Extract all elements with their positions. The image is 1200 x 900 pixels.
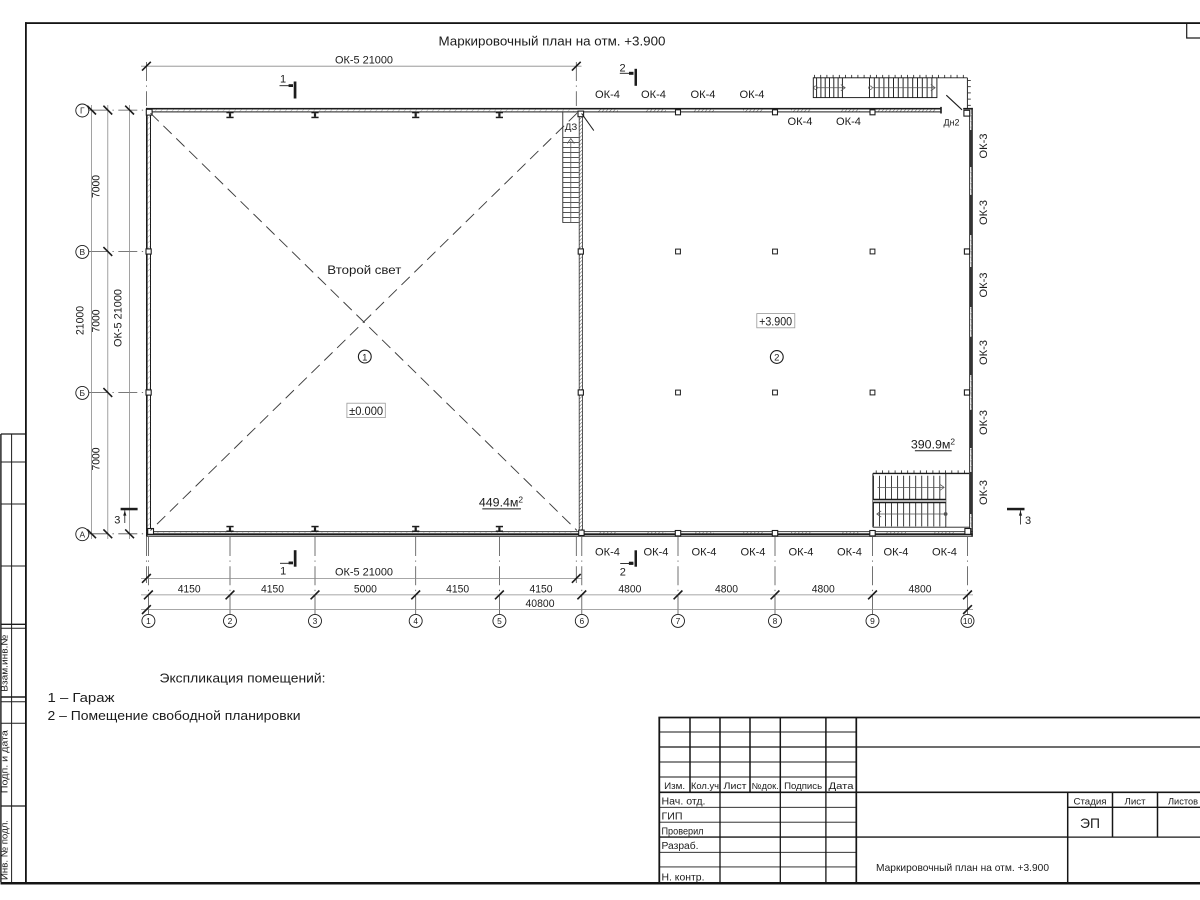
svg-text:4800: 4800: [618, 583, 641, 595]
svg-text:Подп. и дата: Подп. и дата: [0, 729, 11, 793]
svg-text:1: 1: [280, 565, 286, 577]
svg-text:ЭП: ЭП: [1080, 816, 1100, 831]
svg-text:5: 5: [497, 616, 502, 626]
svg-text:7000: 7000: [91, 175, 103, 198]
svg-text:Лист: Лист: [724, 781, 747, 791]
svg-text:21000: 21000: [75, 306, 87, 335]
svg-text:4150: 4150: [261, 583, 284, 595]
svg-text:4150: 4150: [530, 583, 553, 595]
svg-text:ОК-3: ОК-3: [978, 340, 990, 365]
svg-text:ОК-4: ОК-4: [788, 116, 813, 128]
svg-text:ОК-4: ОК-4: [644, 547, 669, 559]
svg-text:1: 1: [362, 352, 367, 363]
svg-text:1: 1: [280, 74, 286, 86]
svg-text:Нач. отд.: Нач. отд.: [662, 797, 706, 808]
svg-text:3: 3: [1025, 515, 1031, 527]
svg-text:ОК-3: ОК-3: [978, 272, 990, 297]
svg-text:ОК-4: ОК-4: [741, 547, 766, 559]
svg-text:2: 2: [619, 62, 625, 74]
svg-text:Лист: Лист: [1125, 797, 1146, 807]
svg-text:ОК-5 21000: ОК-5 21000: [113, 289, 125, 347]
svg-text:Подпись: Подпись: [784, 781, 822, 791]
svg-text:ОК-4: ОК-4: [641, 89, 666, 101]
svg-text:ОК-3: ОК-3: [978, 410, 990, 435]
svg-text:ОК-4: ОК-4: [595, 89, 620, 101]
svg-text:Дата: Дата: [829, 781, 854, 791]
svg-text:ДЗ: ДЗ: [565, 122, 578, 132]
svg-text:Г: Г: [80, 106, 85, 116]
svg-text:8: 8: [773, 616, 778, 626]
svg-text:ОК-5 21000: ОК-5 21000: [335, 567, 393, 579]
svg-text:4150: 4150: [178, 583, 201, 595]
svg-text:Взам.инв.№: Взам.инв.№: [0, 635, 11, 692]
svg-text:ОК-3: ОК-3: [978, 480, 990, 505]
svg-text:ОК-4: ОК-4: [691, 89, 716, 101]
svg-text:7000: 7000: [91, 310, 103, 333]
svg-text:Дн2: Дн2: [944, 117, 960, 127]
svg-text:2: 2: [774, 353, 779, 364]
svg-text:ОК-3: ОК-3: [978, 133, 990, 158]
svg-text:ОК-3: ОК-3: [978, 200, 990, 225]
svg-text:ОК-4: ОК-4: [884, 547, 909, 559]
svg-text:1 – Гараж: 1 – Гараж: [48, 691, 116, 705]
svg-text:40800: 40800: [526, 598, 555, 610]
svg-text:7000: 7000: [91, 448, 103, 471]
svg-text:1: 1: [146, 616, 151, 626]
svg-text:2 – Помещение свободной планир: 2 – Помещение свободной планировки: [48, 709, 301, 723]
svg-text:ОК-4: ОК-4: [595, 547, 620, 559]
svg-text:2: 2: [620, 566, 626, 578]
svg-text:+3.900: +3.900: [759, 316, 792, 329]
svg-text:Н. контр.: Н. контр.: [662, 872, 705, 883]
svg-text:2: 2: [228, 616, 233, 626]
svg-text:ОК-4: ОК-4: [932, 547, 957, 559]
svg-text:В: В: [80, 247, 86, 257]
svg-text:Экспликация помещений:: Экспликация помещений:: [160, 672, 326, 686]
svg-text:Второй свет: Второй свет: [327, 263, 402, 277]
svg-text:9: 9: [870, 616, 875, 626]
svg-text:6: 6: [579, 616, 584, 626]
svg-text:Кол.уч: Кол.уч: [691, 781, 719, 791]
svg-text:±0.000: ±0.000: [349, 405, 383, 418]
svg-text:Маркировочный план на отм. +3.: Маркировочный план на отм. +3.900: [439, 33, 666, 48]
svg-text:ОК-5 21000: ОК-5 21000: [335, 54, 393, 66]
svg-text:ОК-4: ОК-4: [740, 89, 765, 101]
svg-text:4: 4: [413, 616, 418, 626]
svg-text:449.4м2: 449.4м2: [479, 494, 524, 509]
svg-text:4800: 4800: [715, 583, 738, 595]
svg-text:5000: 5000: [354, 583, 377, 595]
svg-text:Инв. № подл.: Инв. № подл.: [0, 820, 11, 880]
svg-text:ОК-4: ОК-4: [837, 547, 862, 559]
svg-text:3: 3: [313, 616, 318, 626]
svg-text:ОК-4: ОК-4: [789, 547, 814, 559]
svg-text:Стадия: Стадия: [1074, 797, 1107, 807]
svg-text:Маркировочный план на отм. +3.: Маркировочный план на отм. +3.900: [876, 863, 1049, 874]
svg-text:Листов: Листов: [1168, 797, 1198, 807]
svg-text:4800: 4800: [909, 583, 932, 595]
svg-text:3: 3: [114, 515, 120, 527]
svg-text:7: 7: [676, 616, 681, 626]
svg-text:ГИП: ГИП: [662, 811, 683, 822]
svg-text:Проверил: Проверил: [662, 826, 704, 837]
svg-text:ОК-4: ОК-4: [692, 547, 717, 559]
svg-text:390.9м2: 390.9м2: [911, 436, 956, 451]
svg-text:Изм.: Изм.: [664, 781, 685, 791]
svg-text:4800: 4800: [812, 583, 835, 595]
svg-text:№док.: №док.: [752, 781, 779, 791]
svg-text:4150: 4150: [446, 583, 469, 595]
svg-text:ОК-4: ОК-4: [836, 116, 861, 128]
svg-text:А: А: [80, 529, 86, 539]
svg-text:10: 10: [963, 616, 973, 626]
svg-text:Разраб.: Разраб.: [662, 841, 699, 852]
svg-text:Б: Б: [80, 388, 86, 398]
